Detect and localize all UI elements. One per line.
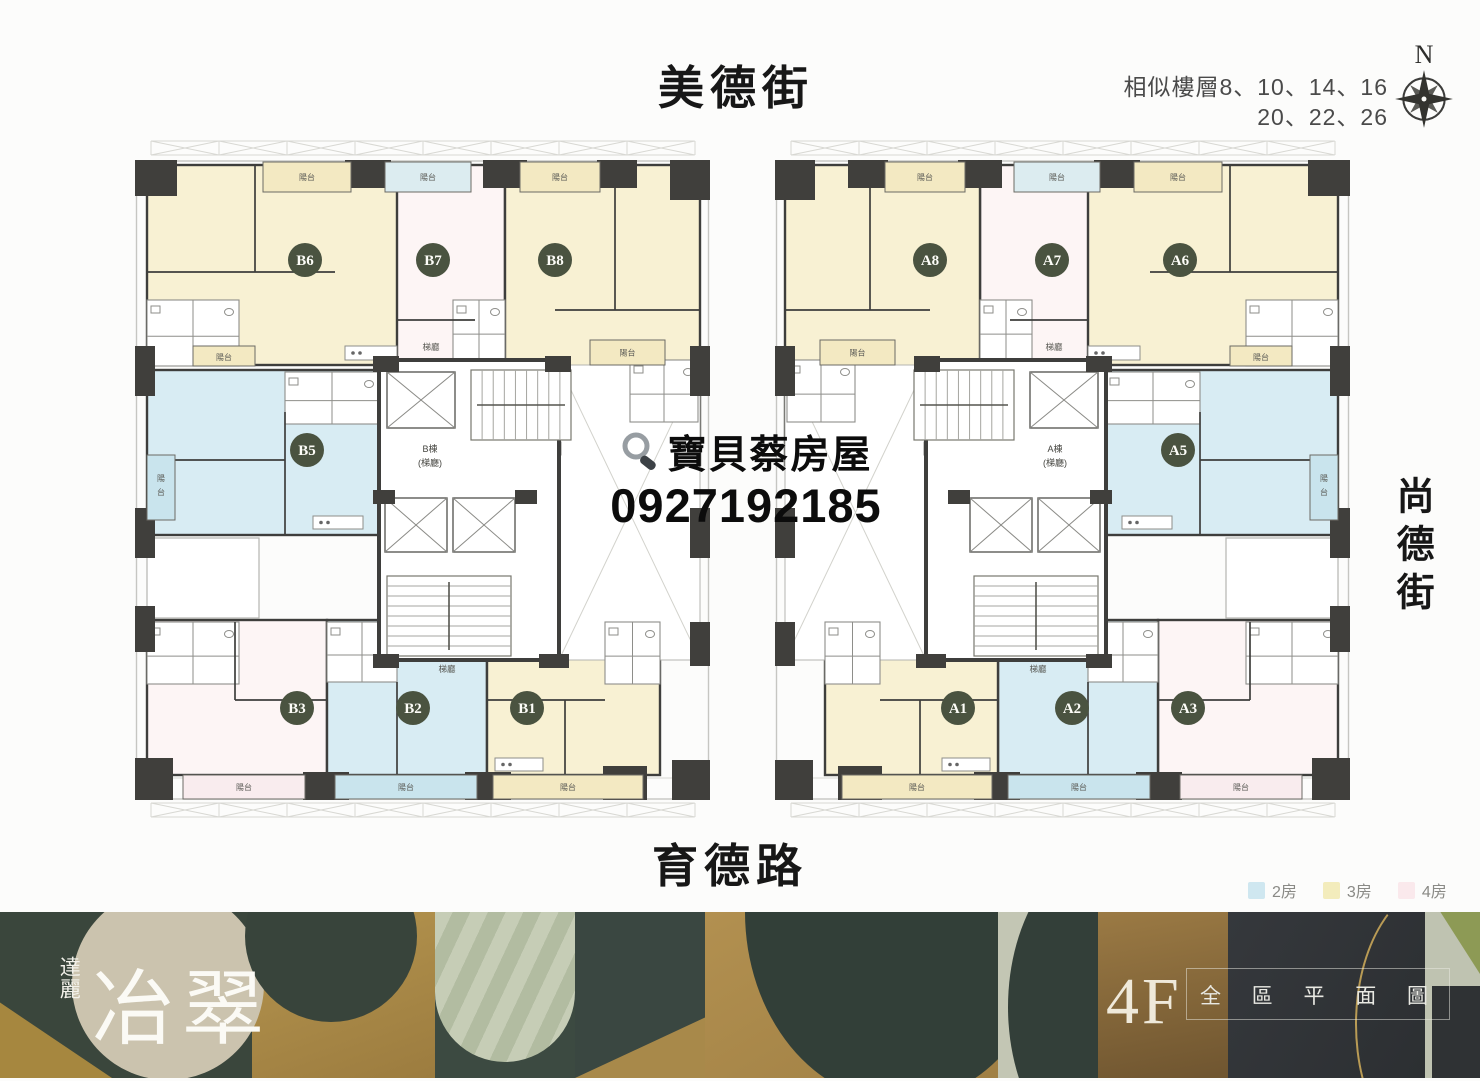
magnifier-icon [619,430,663,474]
similar-floors-line1: 相似樓層8、10、14、16 [1058,72,1388,102]
svg-text:(梯廳): (梯廳) [418,457,442,468]
svg-text:A8: A8 [921,253,939,269]
room-type-legend: 2房 3房 4房 [1248,878,1447,902]
svg-text:梯廳: 梯廳 [1045,342,1063,352]
watermark-phone: 0927192185 [566,478,926,533]
legend-swatch-3br [1323,882,1340,899]
svg-text:A3: A3 [1179,701,1197,717]
legend-swatch-2br [1248,882,1265,899]
svg-text:(梯廳): (梯廳) [1043,457,1067,468]
floor-level-label: 4F [1106,964,1182,1040]
svg-text:陽: 陽 [1320,474,1328,483]
svg-text:陽台: 陽台 [620,348,636,358]
legend-item-3br: 3房 [1323,878,1372,902]
svg-text:B棟: B棟 [422,443,437,454]
svg-text:A棟: A棟 [1047,443,1062,454]
compass-rose-icon [1393,68,1455,130]
brand-name-vertical: 達麗 [56,956,81,1006]
svg-text:陽台: 陽台 [398,782,414,792]
plan-title-char: 區 [1252,980,1273,1010]
legend-label-2br: 2房 [1272,878,1297,902]
svg-text:陽台: 陽台 [560,782,576,792]
svg-text:陽台: 陽台 [1253,352,1269,362]
svg-text:B2: B2 [404,701,422,717]
svg-text:梯廳: 梯廳 [438,664,456,674]
svg-text:A2: A2 [1063,701,1081,717]
legend-label-4br: 4房 [1422,878,1447,902]
svg-text:A7: A7 [1043,253,1062,269]
bottom-banner: 達麗 冶翠 4F 全 區 平 面 圖 [0,912,1480,1078]
legend-item-2br: 2房 [1248,878,1297,902]
svg-text:陽: 陽 [157,474,165,483]
svg-text:陽台: 陽台 [1170,172,1186,182]
svg-text:陽台: 陽台 [1071,782,1087,792]
similar-floors-line2: 20、22、26 [1058,102,1388,132]
svg-text:台: 台 [1320,487,1328,497]
brand-name-vertical-text: 達麗 [56,956,81,1000]
plan-title-char: 全 [1200,980,1221,1010]
svg-text:B5: B5 [298,443,316,459]
svg-text:A5: A5 [1169,443,1187,459]
street-label-right: 尚德街 [1386,476,1428,633]
banner-sage-capsule [435,912,575,1062]
street-label-top: 美德街 [658,52,814,118]
watermark-name: 寶貝蔡房屋 [667,424,872,480]
compass: N [1392,42,1456,142]
flyer-page: 美德街 相似樓層8、10、14、16 20、22、26 N 尚德街 育德路 寶貝… [0,0,1480,1081]
svg-text:陽台: 陽台 [299,172,315,182]
svg-text:台: 台 [157,487,165,497]
similar-floors-note: 相似樓層8、10、14、16 20、22、26 [1058,72,1388,133]
street-label-right-text: 尚德街 [1386,476,1436,620]
svg-text:陽台: 陽台 [1233,782,1249,792]
svg-text:A6: A6 [1171,253,1190,269]
svg-text:陽台: 陽台 [1049,172,1065,182]
svg-text:B3: B3 [288,701,306,717]
plan-title-char: 面 [1355,980,1376,1010]
plan-title-char: 平 [1304,980,1325,1010]
brand-name-main: 冶翠 [92,942,272,1061]
svg-text:陽台: 陽台 [236,782,252,792]
svg-text:B1: B1 [518,701,536,717]
svg-text:A1: A1 [949,701,967,717]
svg-text:梯廳: 梯廳 [422,342,440,352]
svg-text:陽台: 陽台 [917,172,933,182]
street-label-bottom: 育德路 [652,830,808,896]
svg-text:陽台: 陽台 [909,782,925,792]
svg-text:B8: B8 [546,253,564,269]
plan-title-char: 圖 [1407,980,1428,1010]
legend-item-4br: 4房 [1398,878,1447,902]
svg-text:陽台: 陽台 [552,172,568,182]
compass-north-label: N [1392,42,1456,68]
svg-text:B6: B6 [296,253,314,269]
svg-text:陽台: 陽台 [216,352,232,362]
legend-swatch-4br [1398,882,1415,899]
watermark: 寶貝蔡房屋 0927192185 [566,424,926,533]
svg-text:陽台: 陽台 [850,348,866,358]
svg-text:陽台: 陽台 [420,172,436,182]
svg-text:梯廳: 梯廳 [1029,664,1047,674]
svg-text:B7: B7 [424,253,442,269]
plan-title: 全 區 平 面 圖 [1200,980,1428,1010]
legend-label-3br: 3房 [1347,878,1372,902]
